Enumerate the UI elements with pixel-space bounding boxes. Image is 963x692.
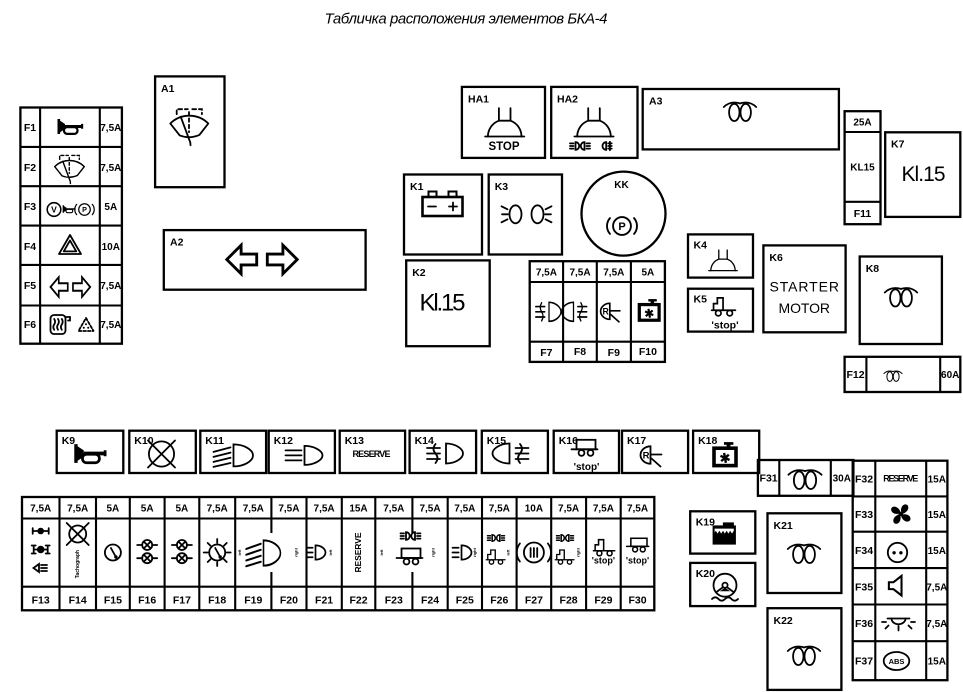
svg-text:7,5A: 7,5A: [926, 619, 947, 630]
svg-text:F36: F36: [855, 618, 873, 630]
svg-text:KK: KK: [614, 180, 629, 191]
svg-text:F23: F23: [385, 595, 403, 607]
svg-text:HA2: HA2: [557, 94, 578, 106]
svg-text:F24: F24: [421, 595, 439, 607]
svg-text:7,5A: 7,5A: [926, 582, 947, 593]
svg-text:5A: 5A: [642, 268, 655, 279]
svg-text:right: right: [576, 547, 581, 557]
svg-text:F31: F31: [760, 473, 778, 485]
svg-text:left: left: [328, 549, 333, 556]
svg-text:7,5A: 7,5A: [627, 504, 648, 515]
svg-text:7,5A: 7,5A: [207, 504, 228, 515]
svg-text:left: left: [506, 549, 511, 556]
svg-text:K13: K13: [345, 435, 364, 447]
svg-text:F5: F5: [24, 280, 36, 292]
svg-text:K18: K18: [698, 435, 717, 447]
svg-text:K9: K9: [62, 435, 76, 447]
svg-text:K4: K4: [694, 240, 708, 252]
svg-text:5A: 5A: [107, 504, 120, 515]
svg-text:7,5A: 7,5A: [558, 504, 579, 515]
svg-text:A3: A3: [649, 96, 663, 108]
svg-text:F1: F1: [24, 122, 36, 134]
svg-text:60A: 60A: [941, 370, 959, 381]
svg-text:K15: K15: [487, 435, 506, 447]
svg-text:K1: K1: [410, 181, 424, 193]
svg-text:F2: F2: [24, 162, 36, 174]
svg-text:right: right: [294, 547, 299, 557]
svg-text:F25: F25: [456, 595, 474, 607]
svg-text:F33: F33: [855, 509, 873, 521]
svg-text:30A: 30A: [833, 474, 851, 485]
svg-text:Kl.15: Kl.15: [420, 290, 466, 317]
svg-text:'stop': 'stop': [626, 556, 649, 566]
svg-text:F30: F30: [628, 595, 646, 607]
svg-text:7,5A: 7,5A: [593, 504, 614, 515]
svg-text:7,5A: 7,5A: [30, 504, 51, 515]
svg-text:RESERVE: RESERVE: [883, 474, 918, 484]
svg-text:F13: F13: [32, 595, 50, 607]
svg-text:right: right: [431, 547, 436, 557]
svg-text:15A: 15A: [349, 504, 367, 515]
svg-text:7,5A: 7,5A: [100, 320, 121, 331]
svg-text:7,5A: 7,5A: [536, 268, 557, 279]
svg-text:F21: F21: [315, 595, 333, 607]
svg-text:7,5A: 7,5A: [243, 504, 264, 515]
svg-text:15A: 15A: [928, 657, 946, 668]
svg-text:F8: F8: [574, 346, 586, 358]
svg-text:F18: F18: [208, 595, 226, 607]
svg-text:F32: F32: [855, 474, 873, 486]
svg-text:F22: F22: [349, 595, 367, 607]
svg-text:right: right: [472, 547, 477, 557]
svg-text:K8: K8: [866, 263, 880, 275]
svg-text:F9: F9: [608, 347, 620, 359]
svg-text:F4: F4: [24, 241, 36, 253]
svg-text:15A: 15A: [928, 475, 946, 486]
svg-text:10A: 10A: [525, 504, 543, 515]
svg-text:F7: F7: [540, 347, 552, 359]
svg-text:25A: 25A: [853, 118, 871, 129]
svg-text:15A: 15A: [928, 546, 946, 557]
svg-text:K5: K5: [694, 294, 708, 306]
svg-text:A2: A2: [170, 237, 184, 249]
svg-text:F34: F34: [855, 545, 873, 557]
svg-text:K17: K17: [627, 435, 646, 447]
svg-text:F28: F28: [560, 595, 578, 607]
svg-text:5A: 5A: [104, 202, 117, 213]
svg-text:K3: K3: [495, 181, 509, 193]
svg-text:F27: F27: [525, 595, 543, 607]
svg-text:7,5A: 7,5A: [489, 504, 510, 515]
svg-text:F19: F19: [244, 595, 262, 607]
svg-text:7,5A: 7,5A: [100, 123, 121, 134]
svg-text:F11: F11: [854, 208, 872, 220]
svg-text:K14: K14: [415, 435, 434, 447]
svg-text:K6: K6: [769, 252, 783, 264]
svg-text:7,5A: 7,5A: [419, 504, 440, 515]
svg-text:7,5A: 7,5A: [603, 268, 624, 279]
svg-text:F17: F17: [173, 595, 191, 607]
svg-text:15A: 15A: [928, 510, 946, 521]
svg-text:K12: K12: [274, 435, 293, 447]
svg-text:7,5A: 7,5A: [278, 504, 299, 515]
svg-text:left: left: [237, 549, 242, 556]
svg-text:'stop': 'stop': [592, 556, 615, 566]
svg-text:'stop': 'stop': [574, 462, 600, 473]
svg-text:7,5A: 7,5A: [67, 504, 88, 515]
svg-text:7,5A: 7,5A: [454, 504, 475, 515]
svg-text:K2: K2: [412, 267, 426, 279]
svg-text:left: left: [379, 549, 384, 556]
svg-text:K21: K21: [774, 520, 793, 532]
svg-text:A1: A1: [161, 83, 175, 95]
svg-text:K7: K7: [891, 139, 905, 151]
svg-text:MOTOR: MOTOR: [779, 300, 831, 316]
svg-text:'stop': 'stop': [711, 320, 738, 332]
svg-text:F37: F37: [855, 656, 873, 668]
svg-text:7,5A: 7,5A: [383, 504, 404, 515]
svg-text:F35: F35: [855, 581, 873, 593]
svg-text:F12: F12: [846, 369, 864, 381]
svg-text:5A: 5A: [176, 504, 189, 515]
svg-text:7,5A: 7,5A: [100, 281, 121, 292]
svg-text:K19: K19: [696, 517, 715, 529]
svg-text:F15: F15: [104, 595, 122, 607]
svg-text:F20: F20: [280, 595, 298, 607]
svg-text:K20: K20: [696, 568, 715, 580]
svg-text:F29: F29: [594, 595, 612, 607]
svg-text:10A: 10A: [102, 242, 120, 253]
svg-text:F14: F14: [69, 595, 87, 607]
svg-text:K22: K22: [774, 615, 793, 627]
svg-text:5A: 5A: [141, 504, 154, 515]
svg-text:Табличка расположения элементо: Табличка расположения элементов БКА-4: [325, 11, 608, 28]
svg-text:K16: K16: [559, 435, 578, 447]
svg-text:STOP: STOP: [488, 141, 519, 153]
svg-text:RESERVE: RESERVE: [353, 532, 363, 572]
svg-text:F10: F10: [639, 346, 657, 358]
svg-text:Kl.15: Kl.15: [902, 163, 946, 186]
svg-text:Tachograph: Tachograph: [75, 550, 81, 578]
svg-text:F16: F16: [138, 595, 156, 607]
svg-text:KL15: KL15: [850, 163, 875, 174]
svg-text:7,5A: 7,5A: [314, 504, 335, 515]
svg-text:STARTER: STARTER: [770, 279, 840, 295]
svg-text:K10: K10: [134, 435, 153, 447]
svg-text:F6: F6: [24, 319, 36, 331]
svg-text:7,5A: 7,5A: [569, 268, 590, 279]
svg-text:F3: F3: [24, 201, 36, 213]
svg-text:K11: K11: [205, 435, 224, 447]
svg-text:F26: F26: [490, 595, 508, 607]
svg-text:RESERVE: RESERVE: [353, 449, 391, 459]
svg-text:7,5A: 7,5A: [100, 163, 121, 174]
svg-text:HA1: HA1: [468, 94, 489, 106]
